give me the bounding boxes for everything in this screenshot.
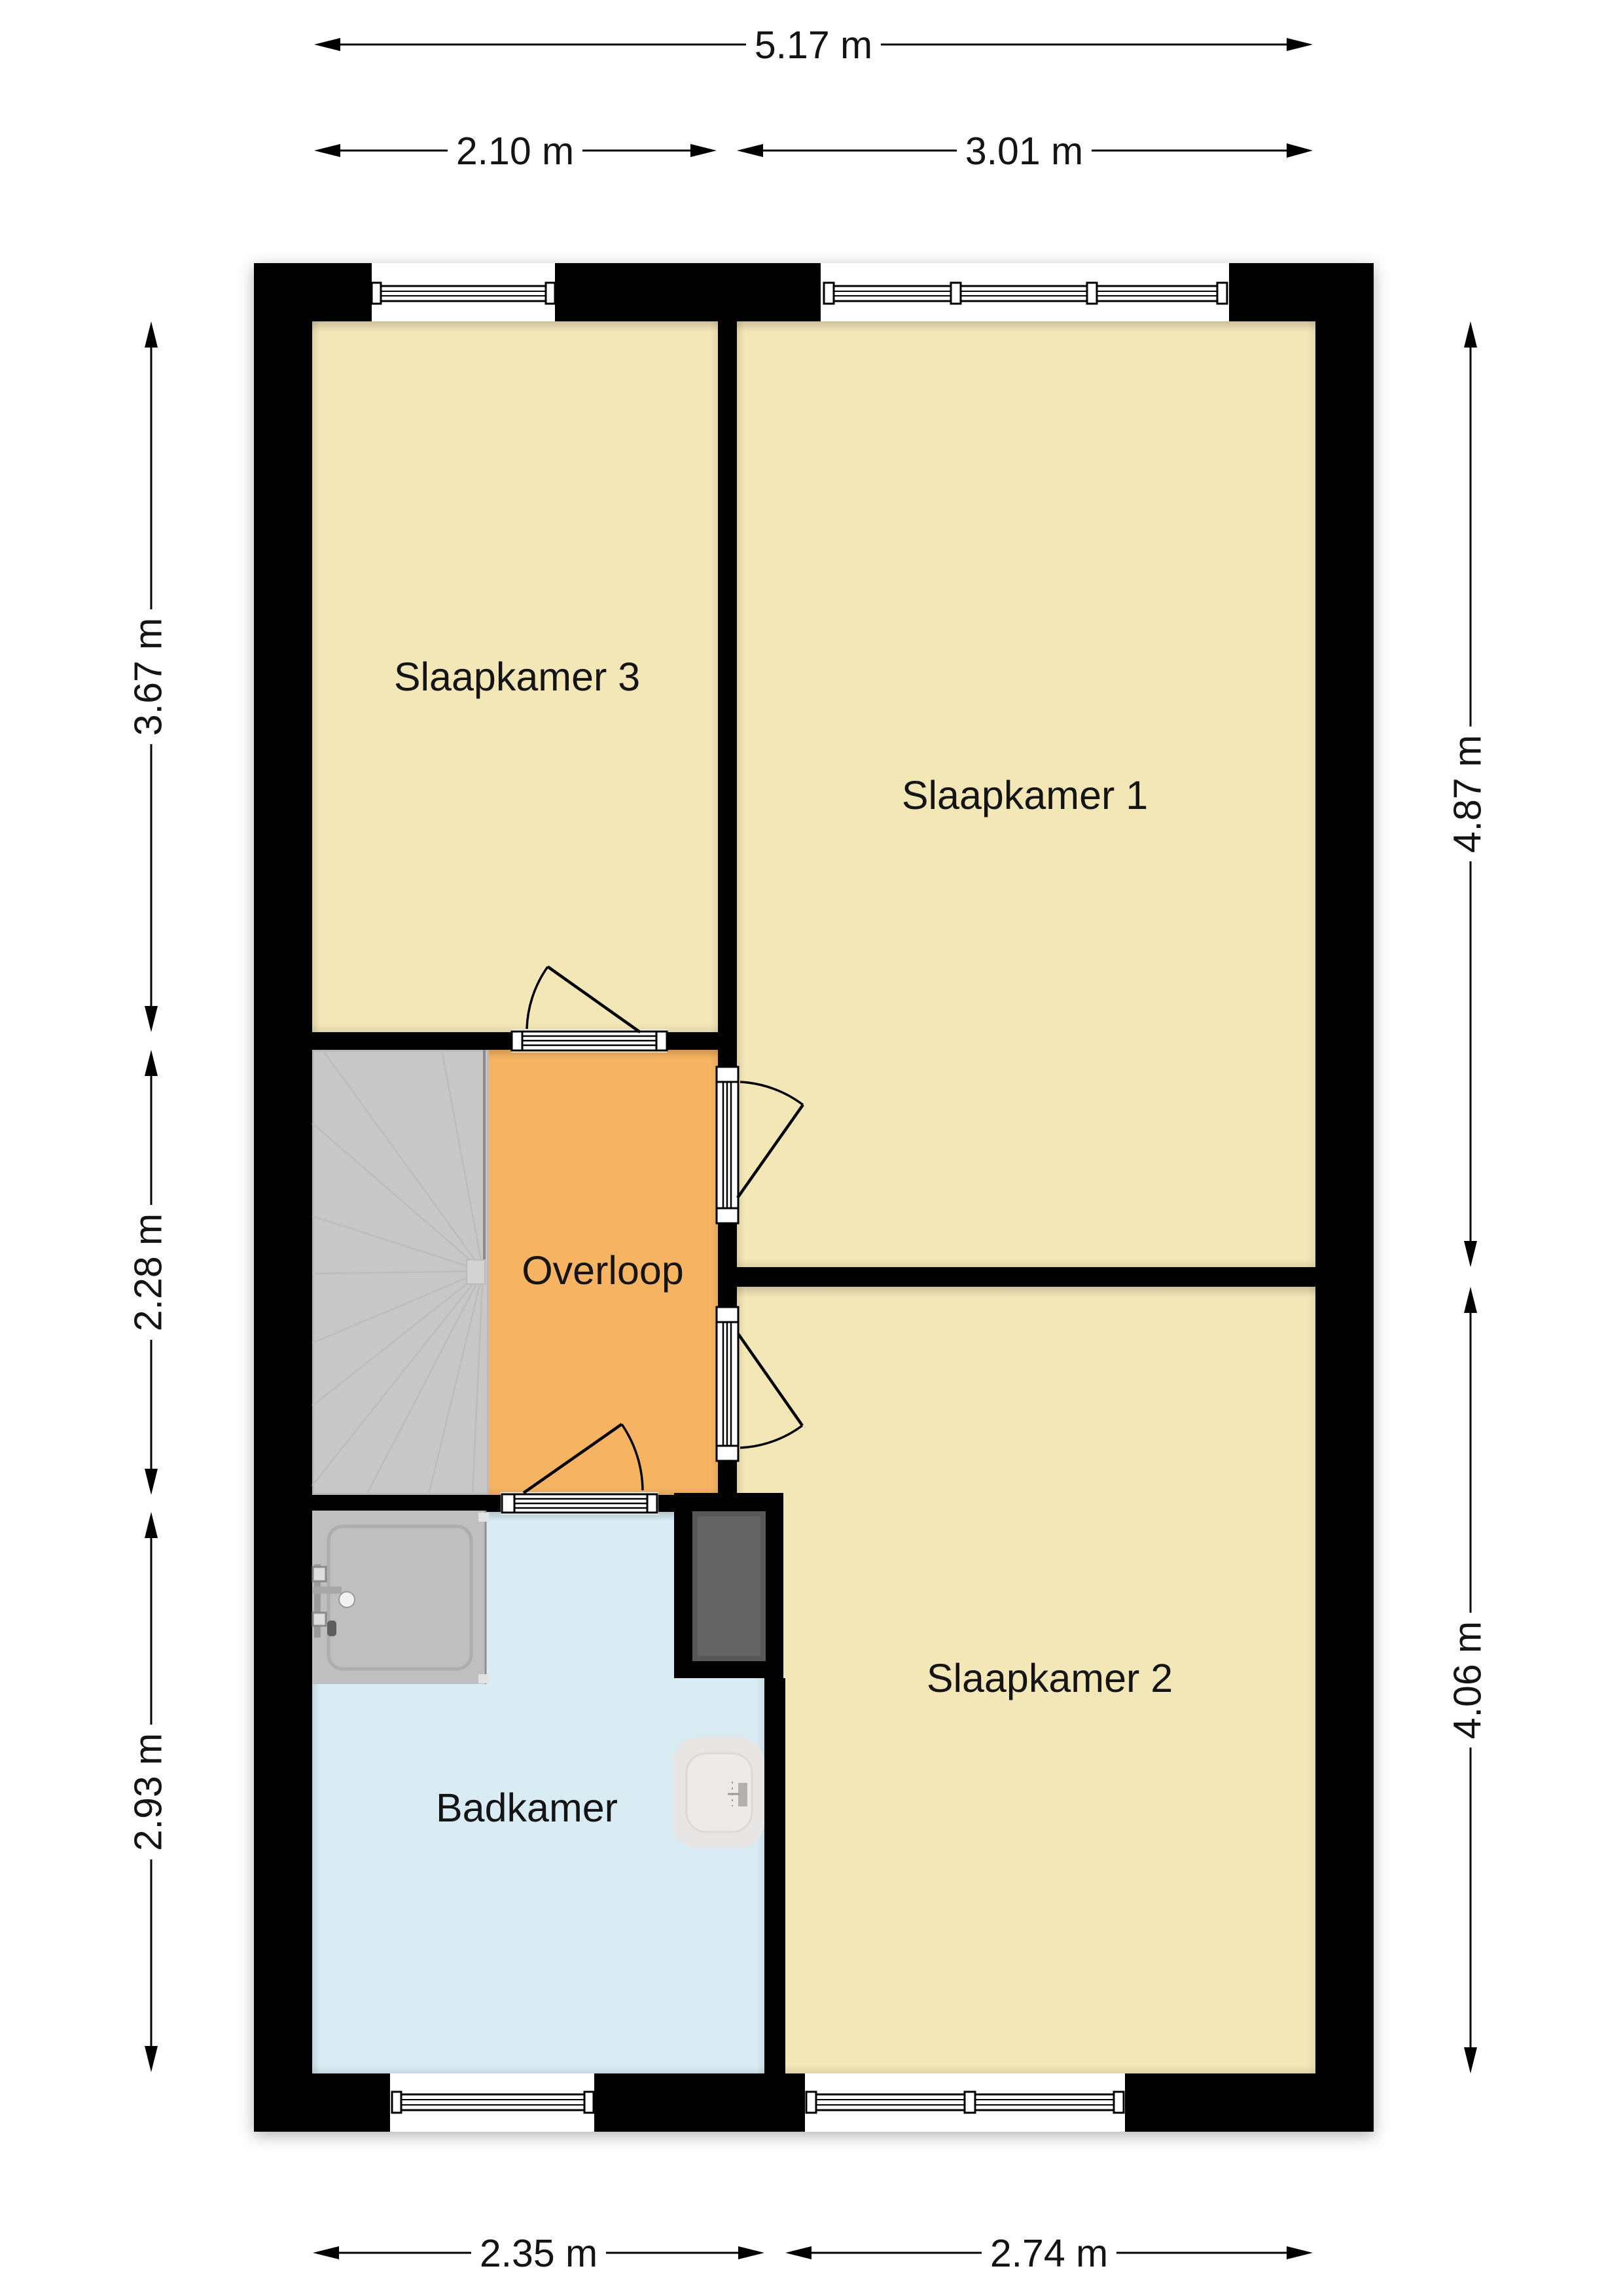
svg-text:4.06 m: 4.06 m [1446, 1621, 1489, 1739]
svg-text:2.28 m: 2.28 m [127, 1213, 170, 1331]
svg-text:3.01 m: 3.01 m [965, 130, 1083, 173]
svg-text:3.67 m: 3.67 m [127, 618, 170, 736]
svg-text:5.17 m: 5.17 m [755, 24, 872, 67]
svg-text:Slaapkamer 2: Slaapkamer 2 [927, 1656, 1173, 1700]
svg-text:2.35 m: 2.35 m [480, 2232, 597, 2275]
svg-text:Slaapkamer 1: Slaapkamer 1 [902, 773, 1148, 817]
svg-text:4.87 m: 4.87 m [1446, 735, 1489, 853]
svg-text:2.74 m: 2.74 m [990, 2232, 1108, 2275]
svg-text:2.10 m: 2.10 m [456, 130, 574, 173]
svg-text:Overloop: Overloop [522, 1248, 684, 1293]
svg-text:2.93 m: 2.93 m [127, 1733, 170, 1851]
svg-text:Badkamer: Badkamer [436, 1785, 618, 1830]
svg-text:Slaapkamer 3: Slaapkamer 3 [394, 655, 640, 699]
